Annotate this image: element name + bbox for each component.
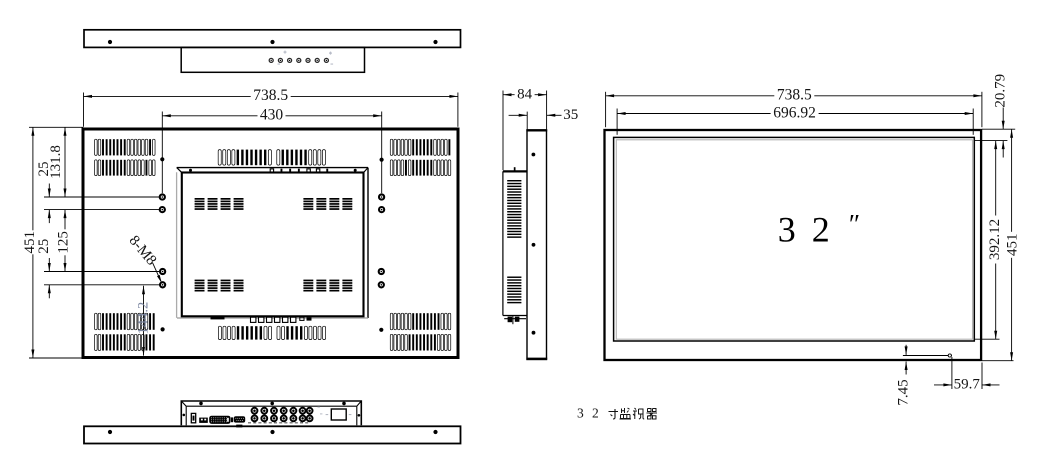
svg-text:3: 3 — [778, 209, 796, 249]
svg-text:7.45: 7.45 — [895, 379, 911, 405]
svg-text:738.5: 738.5 — [253, 87, 288, 104]
svg-text:25: 25 — [36, 239, 52, 254]
svg-text:430: 430 — [260, 107, 284, 124]
svg-text:59.7: 59.7 — [954, 377, 981, 393]
svg-text:738.5: 738.5 — [777, 87, 812, 104]
svg-text:696.92: 696.92 — [773, 104, 816, 121]
svg-text:392.12: 392.12 — [987, 219, 1003, 260]
svg-text:20.79: 20.79 — [993, 74, 1009, 108]
svg-text:35: 35 — [563, 107, 578, 123]
svg-text:451: 451 — [1004, 234, 1020, 256]
svg-text:125: 125 — [56, 231, 72, 254]
svg-text:144.2: 144.2 — [136, 302, 152, 335]
svg-text:3: 3 — [577, 406, 584, 421]
svg-text:2: 2 — [812, 209, 830, 249]
svg-text:2: 2 — [592, 406, 599, 421]
svg-text:25: 25 — [36, 162, 52, 177]
svg-text:84: 84 — [517, 86, 533, 102]
svg-text:″: ″ — [849, 209, 860, 239]
